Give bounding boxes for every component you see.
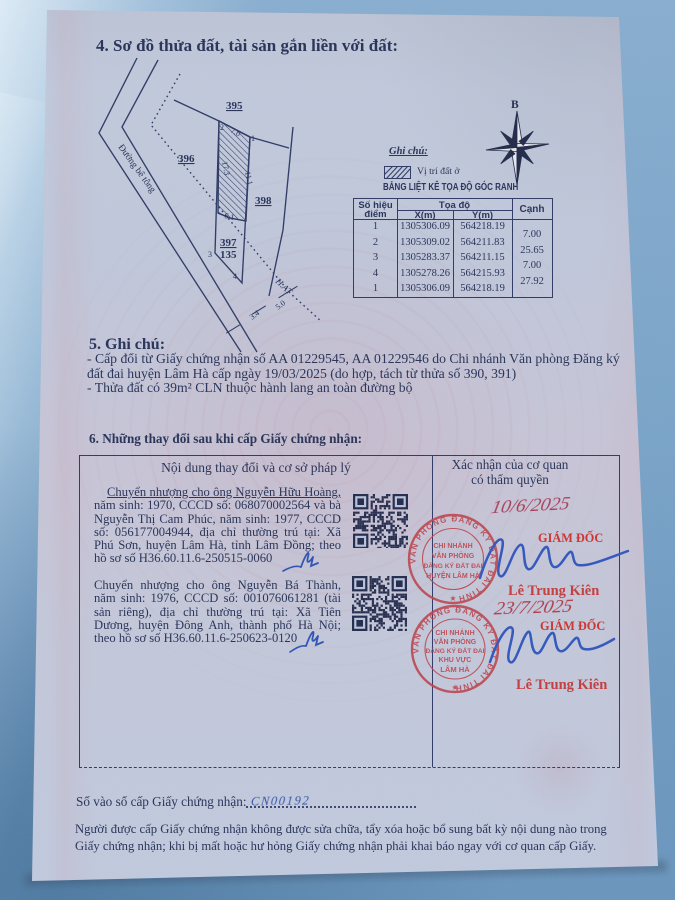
- svg-text:CHI NHÁNH: CHI NHÁNH: [433, 541, 472, 550]
- svg-text:★: ★: [451, 683, 458, 692]
- svg-text:H.AT: H.AT: [273, 275, 295, 297]
- svg-text:397: 397: [220, 237, 237, 249]
- svg-text:4: 4: [233, 272, 237, 281]
- svg-text:395: 395: [226, 100, 243, 112]
- svg-text:VĂN PHÒNG: VĂN PHÒNG: [434, 637, 477, 646]
- svg-text:5.0: 5.0: [274, 298, 287, 311]
- svg-text:135: 135: [220, 249, 237, 261]
- svg-text:KHU VỰC: KHU VỰC: [439, 657, 472, 664]
- svg-text:LÂM HÀ: LÂM HÀ: [440, 665, 470, 674]
- svg-text:2: 2: [220, 123, 224, 132]
- svg-text:CHI NHÁNH: CHI NHÁNH: [435, 628, 474, 637]
- svg-text:VĂN PHÒNG: VĂN PHÒNG: [432, 551, 475, 560]
- svg-text:396: 396: [178, 153, 195, 165]
- svg-text:B: B: [511, 99, 519, 111]
- svg-text:ĐĂNG KÝ ĐẤT ĐAI: ĐĂNG KÝ ĐẤT ĐAI: [426, 645, 485, 655]
- svg-text:6.1: 6.1: [224, 211, 236, 222]
- svg-text:1: 1: [251, 134, 255, 143]
- svg-text:398: 398: [255, 195, 272, 207]
- svg-text:3: 3: [208, 250, 212, 259]
